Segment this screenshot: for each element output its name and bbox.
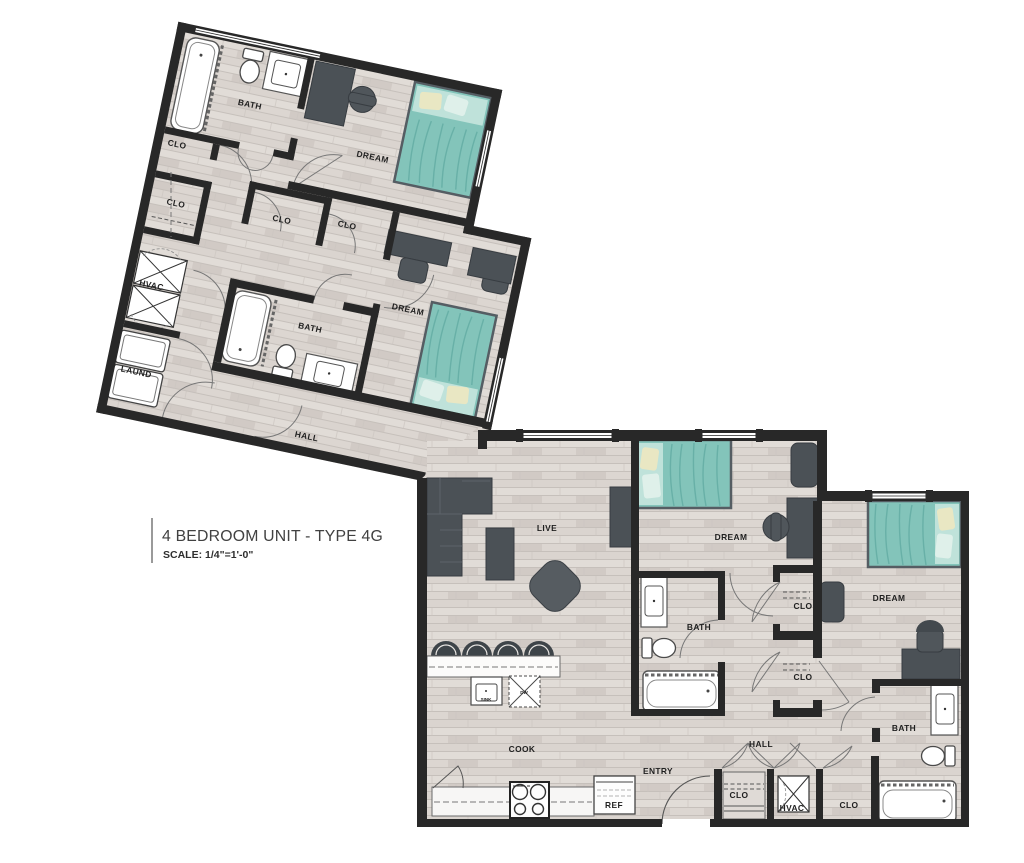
svg-text:CLO: CLO (794, 672, 813, 682)
svg-text:DW: DW (520, 690, 528, 695)
svg-text:4 BEDROOM UNIT - TYPE 4G: 4 BEDROOM UNIT - TYPE 4G (162, 528, 383, 545)
svg-text:DREAM: DREAM (715, 532, 748, 542)
svg-text:HALL: HALL (749, 739, 773, 749)
svg-text:COOK: COOK (509, 744, 536, 754)
svg-text:CLO: CLO (730, 790, 749, 800)
svg-text:ENTRY: ENTRY (643, 766, 673, 776)
svg-text:BATH: BATH (687, 622, 711, 632)
svg-text:CLO: CLO (840, 800, 859, 810)
svg-text:LIVE: LIVE (537, 523, 557, 533)
svg-text:BATH: BATH (892, 723, 916, 733)
svg-text:DREAM: DREAM (873, 593, 906, 603)
svg-text:CLO: CLO (794, 601, 813, 611)
svg-text:SCALE: 1/4"=1'-0": SCALE: 1/4"=1'-0" (163, 549, 253, 561)
svg-text:REF: REF (605, 800, 623, 810)
svg-text:SINK: SINK (481, 697, 493, 702)
svg-text:HVAC: HVAC (780, 803, 805, 813)
